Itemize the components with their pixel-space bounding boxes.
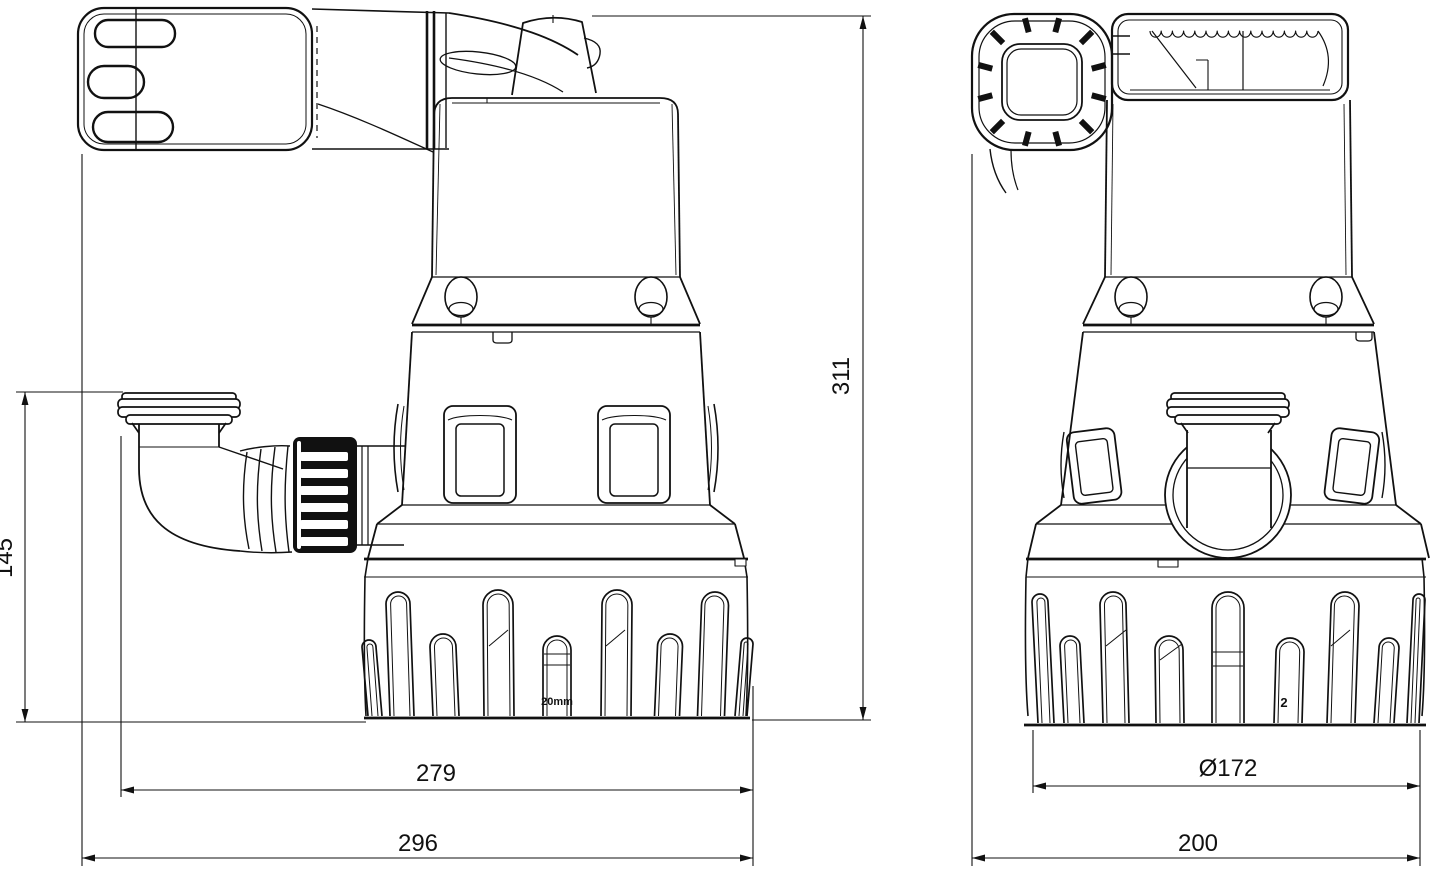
dim-overall-depth-label: 200 [1178,830,1218,857]
strainer-size-marking-side: 2 [1280,695,1287,710]
outlet-port-side [1165,393,1291,558]
technical-drawing-canvas: 20mm [0,0,1445,887]
housing-seam-front [412,325,700,343]
handle-arm [318,13,578,152]
dim-strainer-diameter-label: Ø172 [1199,755,1258,782]
grip-end-knob [972,14,1112,193]
motor-housing-front [412,98,700,324]
motor-housing-side [1083,100,1374,324]
handle-side [1112,14,1348,100]
grip-scallops [1150,31,1318,37]
dim-overall-height-label: 311 [828,357,855,395]
latch-clips-side [1115,277,1342,325]
latch-clips-front [445,277,667,325]
mid-housing-front [394,332,718,505]
strainer-slots-side [1032,592,1425,723]
dimension-labels: 145 311 279 296 Ø172 200 [0,357,1257,857]
housing-seam-side [1083,325,1374,341]
pump-drawing-svg: 20mm [0,0,1445,887]
strainer-size-marking-front: 20mm [541,696,573,708]
handle-grip [78,8,449,150]
outlet-elbow [118,393,406,553]
grip-neck-lines [1112,36,1130,54]
handle-boss [512,15,600,95]
outlet-flange-side [1167,393,1289,433]
dim-overall-width-label: 296 [398,830,438,857]
release-clip-right [598,406,670,503]
outlet-stub [357,446,406,545]
strainer-base-front: 20mm [362,505,753,718]
front-view: 20mm [78,8,753,718]
release-clip-side-right [1324,427,1380,504]
coupling-nut-front [293,437,357,553]
grip-finger-slots [88,20,175,142]
dim-outlet-height-label: 145 [0,538,18,578]
side-view: 2 [972,14,1429,725]
release-clip-side-left [1066,427,1122,504]
release-clip-left [444,406,516,503]
elbow-flange [118,393,240,433]
strainer-base-side: 2 [1024,558,1426,725]
dim-body-width-label: 279 [416,760,456,787]
union-rings [240,446,292,553]
